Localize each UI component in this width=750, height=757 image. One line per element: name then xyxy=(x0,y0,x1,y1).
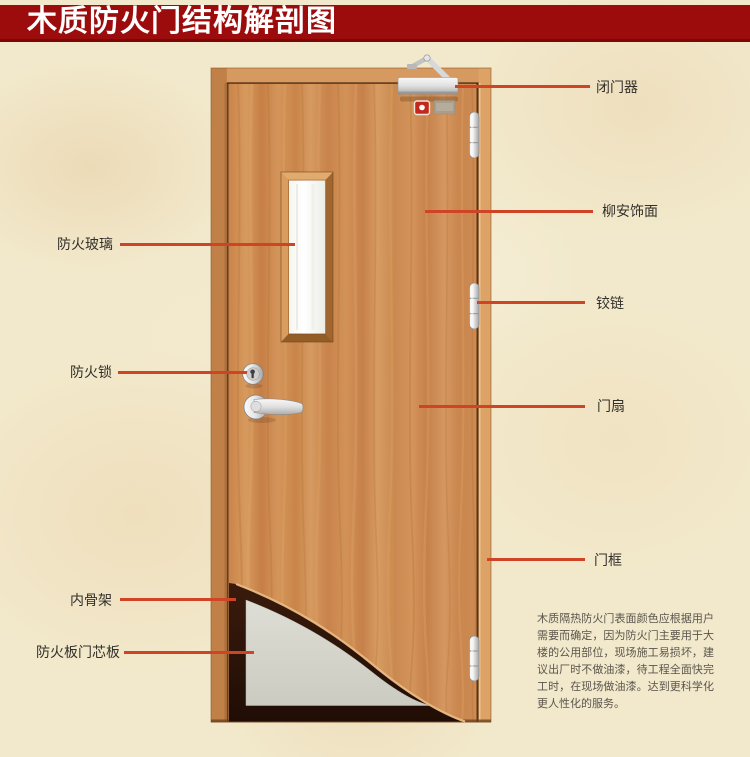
nameplate xyxy=(434,101,455,115)
fire-glass-window xyxy=(281,172,333,342)
callout-line-fire-lock xyxy=(118,371,247,374)
alarm-indicator xyxy=(415,101,430,115)
callout-line-door-closer xyxy=(455,85,590,88)
callout-line-skeleton xyxy=(120,598,236,601)
hinge-bottom xyxy=(470,636,480,681)
door-closer xyxy=(398,55,458,102)
hinge-middle xyxy=(470,283,480,329)
label-fire-lock: 防火锁 xyxy=(70,362,112,382)
label-skeleton: 内骨架 xyxy=(70,590,112,610)
callout-line-fire-glass xyxy=(120,243,295,246)
callout-line-door-leaf xyxy=(419,405,585,408)
callout-line-core-panel xyxy=(124,651,254,654)
label-fire-glass: 防火玻璃 xyxy=(57,234,113,254)
callout-line-door-frame xyxy=(487,558,585,561)
callout-line-veneer xyxy=(425,210,593,213)
callout-line-hinge xyxy=(477,301,585,304)
description-text: 木质隔热防火门表面颜色应根据用户需要而确定，因为防火门主要用于大楼的公用部位，现… xyxy=(537,611,714,713)
label-veneer: 柳安饰面 xyxy=(602,201,658,221)
glass-pane xyxy=(289,181,326,334)
label-door-leaf: 门扇 xyxy=(597,396,625,416)
label-core-panel: 防火板门芯板 xyxy=(36,642,120,662)
product-diagram: { "title": "木质防火门结构解剖图", "callouts": { "… xyxy=(0,0,750,757)
hinge-top xyxy=(470,112,480,158)
label-hinge: 铰链 xyxy=(596,293,624,313)
label-door-frame: 门框 xyxy=(594,550,622,570)
label-door-closer: 闭门器 xyxy=(596,77,638,97)
